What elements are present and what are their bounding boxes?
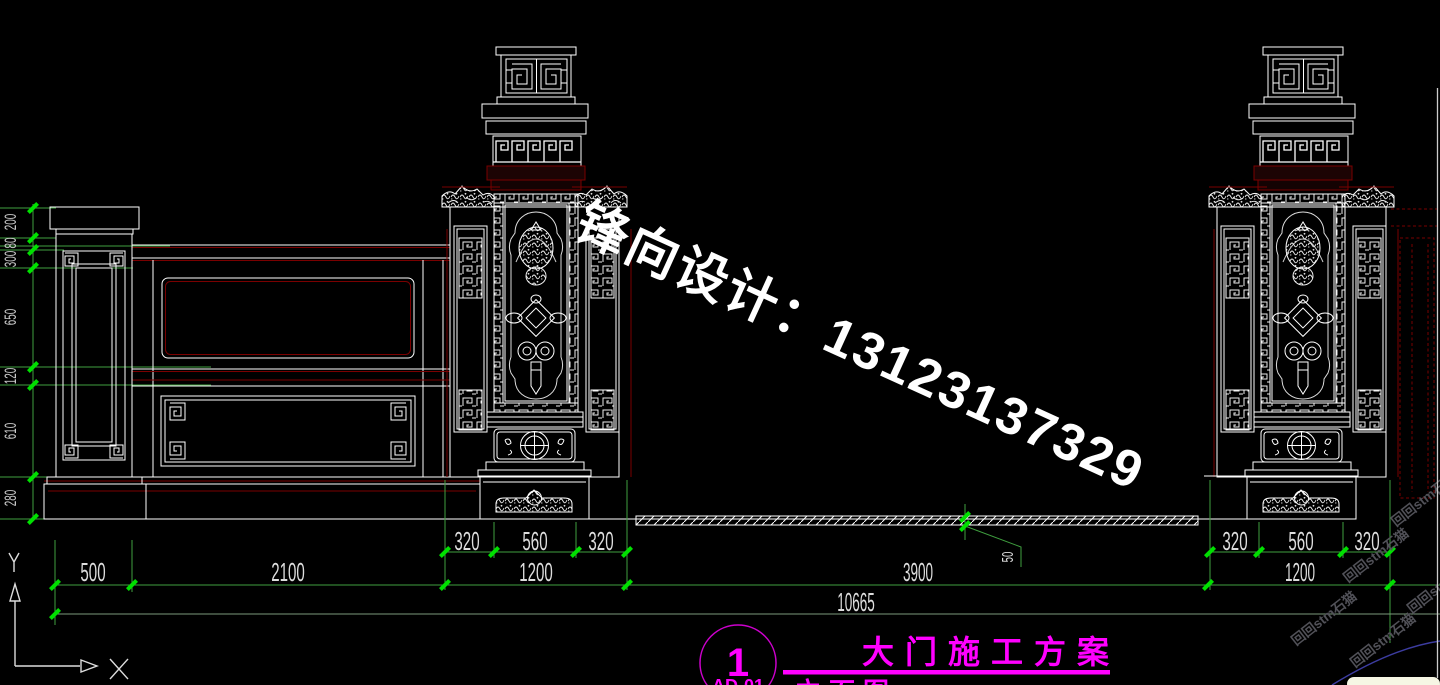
svg-text:1200: 1200 [519, 558, 553, 587]
svg-text:320: 320 [1222, 527, 1247, 556]
svg-text:3900: 3900 [903, 558, 933, 587]
svg-text:300: 300 [0, 251, 20, 268]
svg-text:80: 80 [0, 237, 20, 248]
svg-text:280: 280 [0, 490, 20, 507]
svg-text:120: 120 [0, 368, 20, 385]
svg-text:AD-01: AD-01 [712, 676, 764, 685]
svg-text:2100: 2100 [271, 558, 305, 587]
svg-text:大门施工方案: 大门施工方案 [862, 634, 1120, 670]
svg-text:200: 200 [0, 214, 20, 231]
svg-text:650: 650 [0, 309, 20, 326]
svg-text:10665: 10665 [837, 588, 875, 617]
svg-text:500: 500 [80, 558, 105, 587]
svg-text:320: 320 [454, 527, 479, 556]
svg-text:560: 560 [1288, 527, 1313, 556]
svg-text:560: 560 [522, 527, 547, 556]
svg-text:610: 610 [0, 423, 20, 440]
svg-text:320: 320 [588, 527, 613, 556]
svg-text:立面图: 立面图 [795, 677, 897, 685]
svg-text:50: 50 [998, 552, 1016, 563]
svg-text:1200: 1200 [1285, 558, 1315, 587]
